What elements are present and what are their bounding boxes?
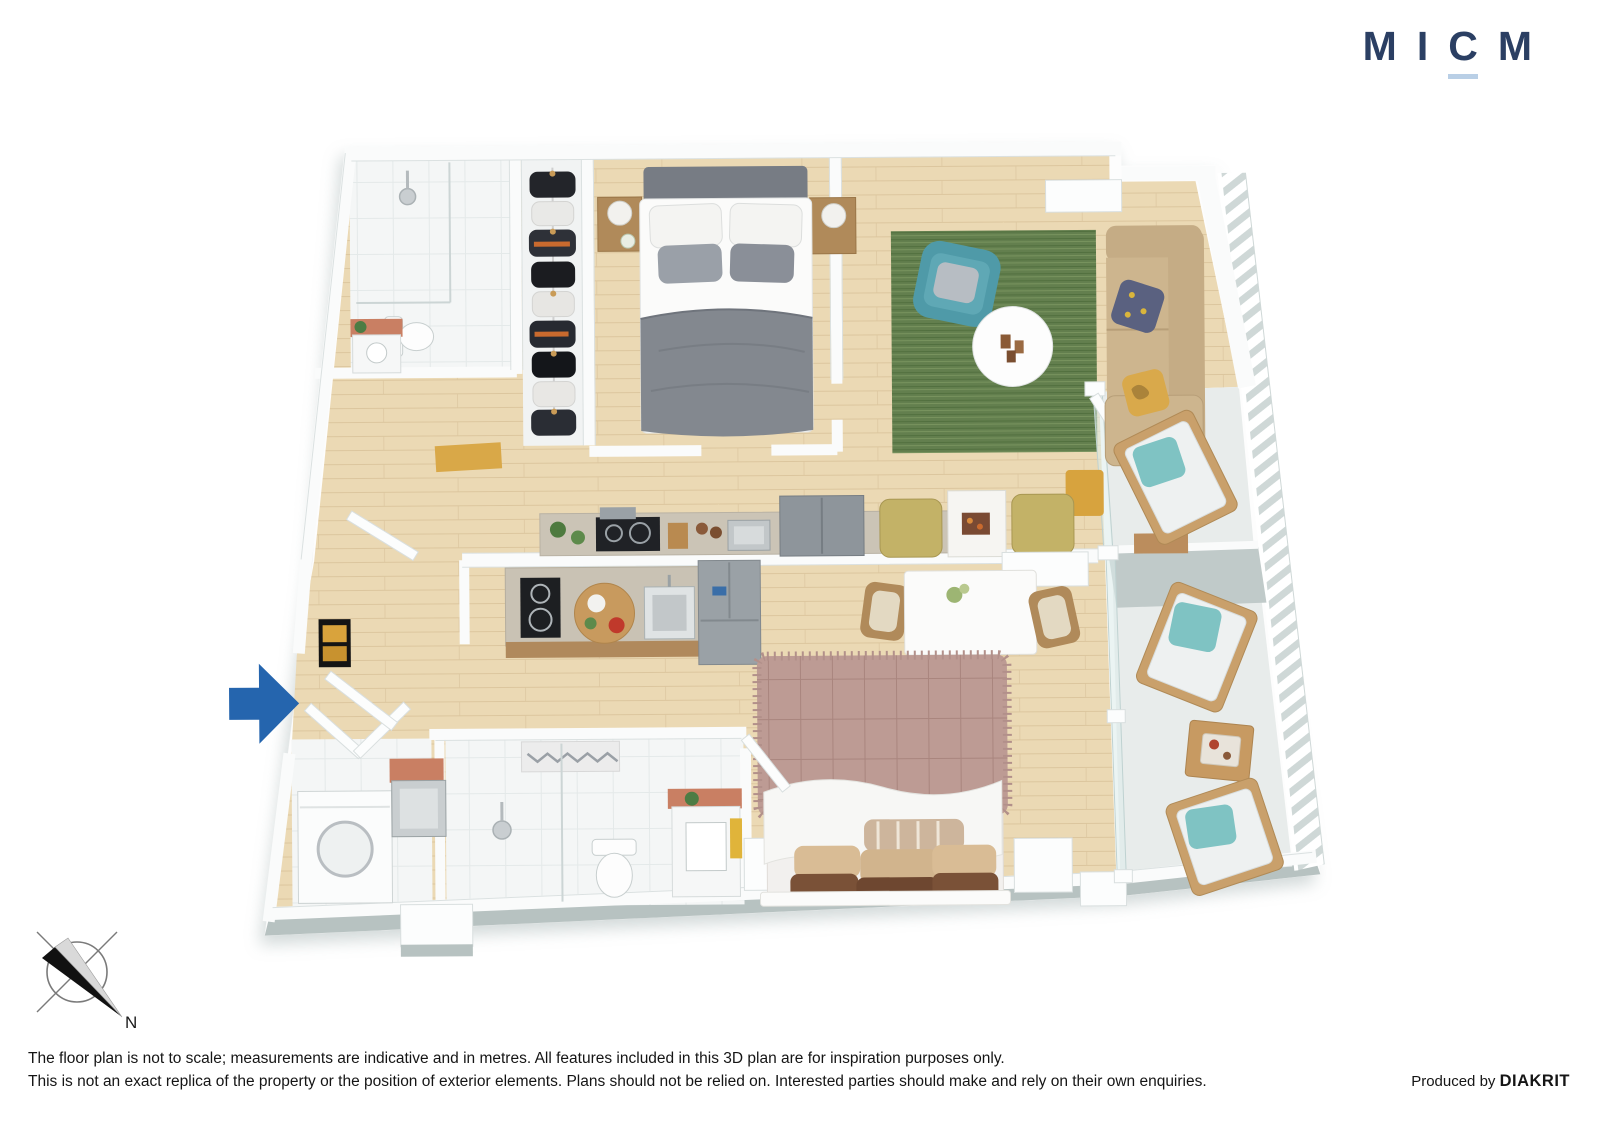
dining-nook: [880, 490, 1074, 557]
hall-mat: [435, 442, 502, 472]
compass-north-label: N: [125, 1013, 137, 1032]
bottom-step: [401, 904, 473, 947]
plant-icon: [550, 522, 566, 538]
compass-needle: [42, 938, 122, 1017]
dining-table: [904, 570, 1037, 655]
yellow-towel: [730, 818, 742, 858]
produced-by: Produced by DIAKRIT: [1411, 1072, 1570, 1091]
producer-name: DIAKRIT: [1500, 1072, 1570, 1090]
disclaimer-line-1: The floor plan is not to scale; measurem…: [28, 1047, 1207, 1070]
walk-in-wardrobe: [528, 167, 577, 435]
balcony-table: [1185, 720, 1254, 782]
nightstand-right: [1014, 838, 1072, 892]
entry-arrow: [229, 663, 300, 743]
floor-plan: [0, 0, 1600, 1131]
ensuite-vanity: [350, 319, 402, 373]
micm-logo: M I C M: [1353, 26, 1542, 79]
disclaimer-line-2: This is not an exact replica of the prop…: [28, 1070, 1207, 1093]
kitchen-lower: [505, 560, 761, 666]
bed-1: [639, 166, 813, 437]
disclaimer: The floor plan is not to scale; measurem…: [28, 1047, 1207, 1093]
sink-upper: [728, 520, 770, 550]
wall-art: [319, 619, 351, 667]
fridge: [698, 560, 761, 664]
lamp-right-icon: [822, 204, 846, 228]
logo-letter: I: [1417, 26, 1428, 67]
chopping-board: [668, 523, 688, 549]
page: M I C M N The floor plan is not to scale…: [0, 0, 1600, 1131]
logo-letter: M: [1363, 26, 1397, 67]
lamp-left-icon: [608, 201, 632, 225]
compass-icon: N: [22, 922, 152, 1032]
laundry-trough: [390, 758, 447, 836]
coffee-table-round: [972, 306, 1053, 387]
serving-board: [574, 583, 634, 643]
vanity-2: [668, 788, 743, 897]
hanging-clothes: [528, 170, 577, 435]
bottom-step-slab: [401, 944, 473, 957]
flower-vase: [621, 234, 635, 248]
tv-sideboard: [1045, 180, 1121, 213]
logo-letter-c: C: [1448, 26, 1478, 79]
bed-2: [757, 654, 1011, 906]
washing-machine: [298, 791, 393, 904]
logo-letter: M: [1498, 26, 1532, 67]
cooktop-lower: [520, 578, 560, 638]
produced-by-prefix: Produced by: [1411, 1073, 1499, 1090]
dining-chair-left: [859, 581, 910, 642]
